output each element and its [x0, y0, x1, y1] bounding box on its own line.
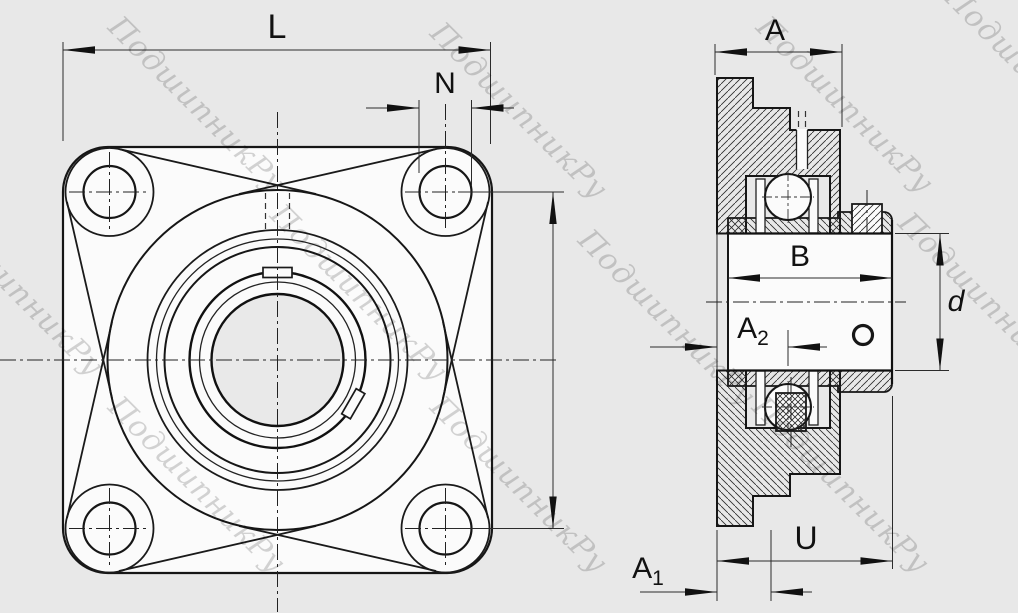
dim-label-L: L [268, 8, 287, 46]
drawing-page: L N A B A2 d U A1 ПодшипникРуПодшипникРу… [0, 0, 1018, 613]
bearing-seal [756, 179, 765, 233]
dim-label-U: U [794, 520, 817, 556]
bearing-seal [809, 179, 818, 233]
set-screw-hole [854, 326, 873, 345]
dim-label-B: B [790, 240, 810, 273]
dim-label-N: N [434, 67, 456, 100]
technical-drawing: L N A B A2 d U A1 ПодшипникРуПодшипникРу… [0, 0, 1018, 613]
grease-channel [797, 129, 808, 169]
